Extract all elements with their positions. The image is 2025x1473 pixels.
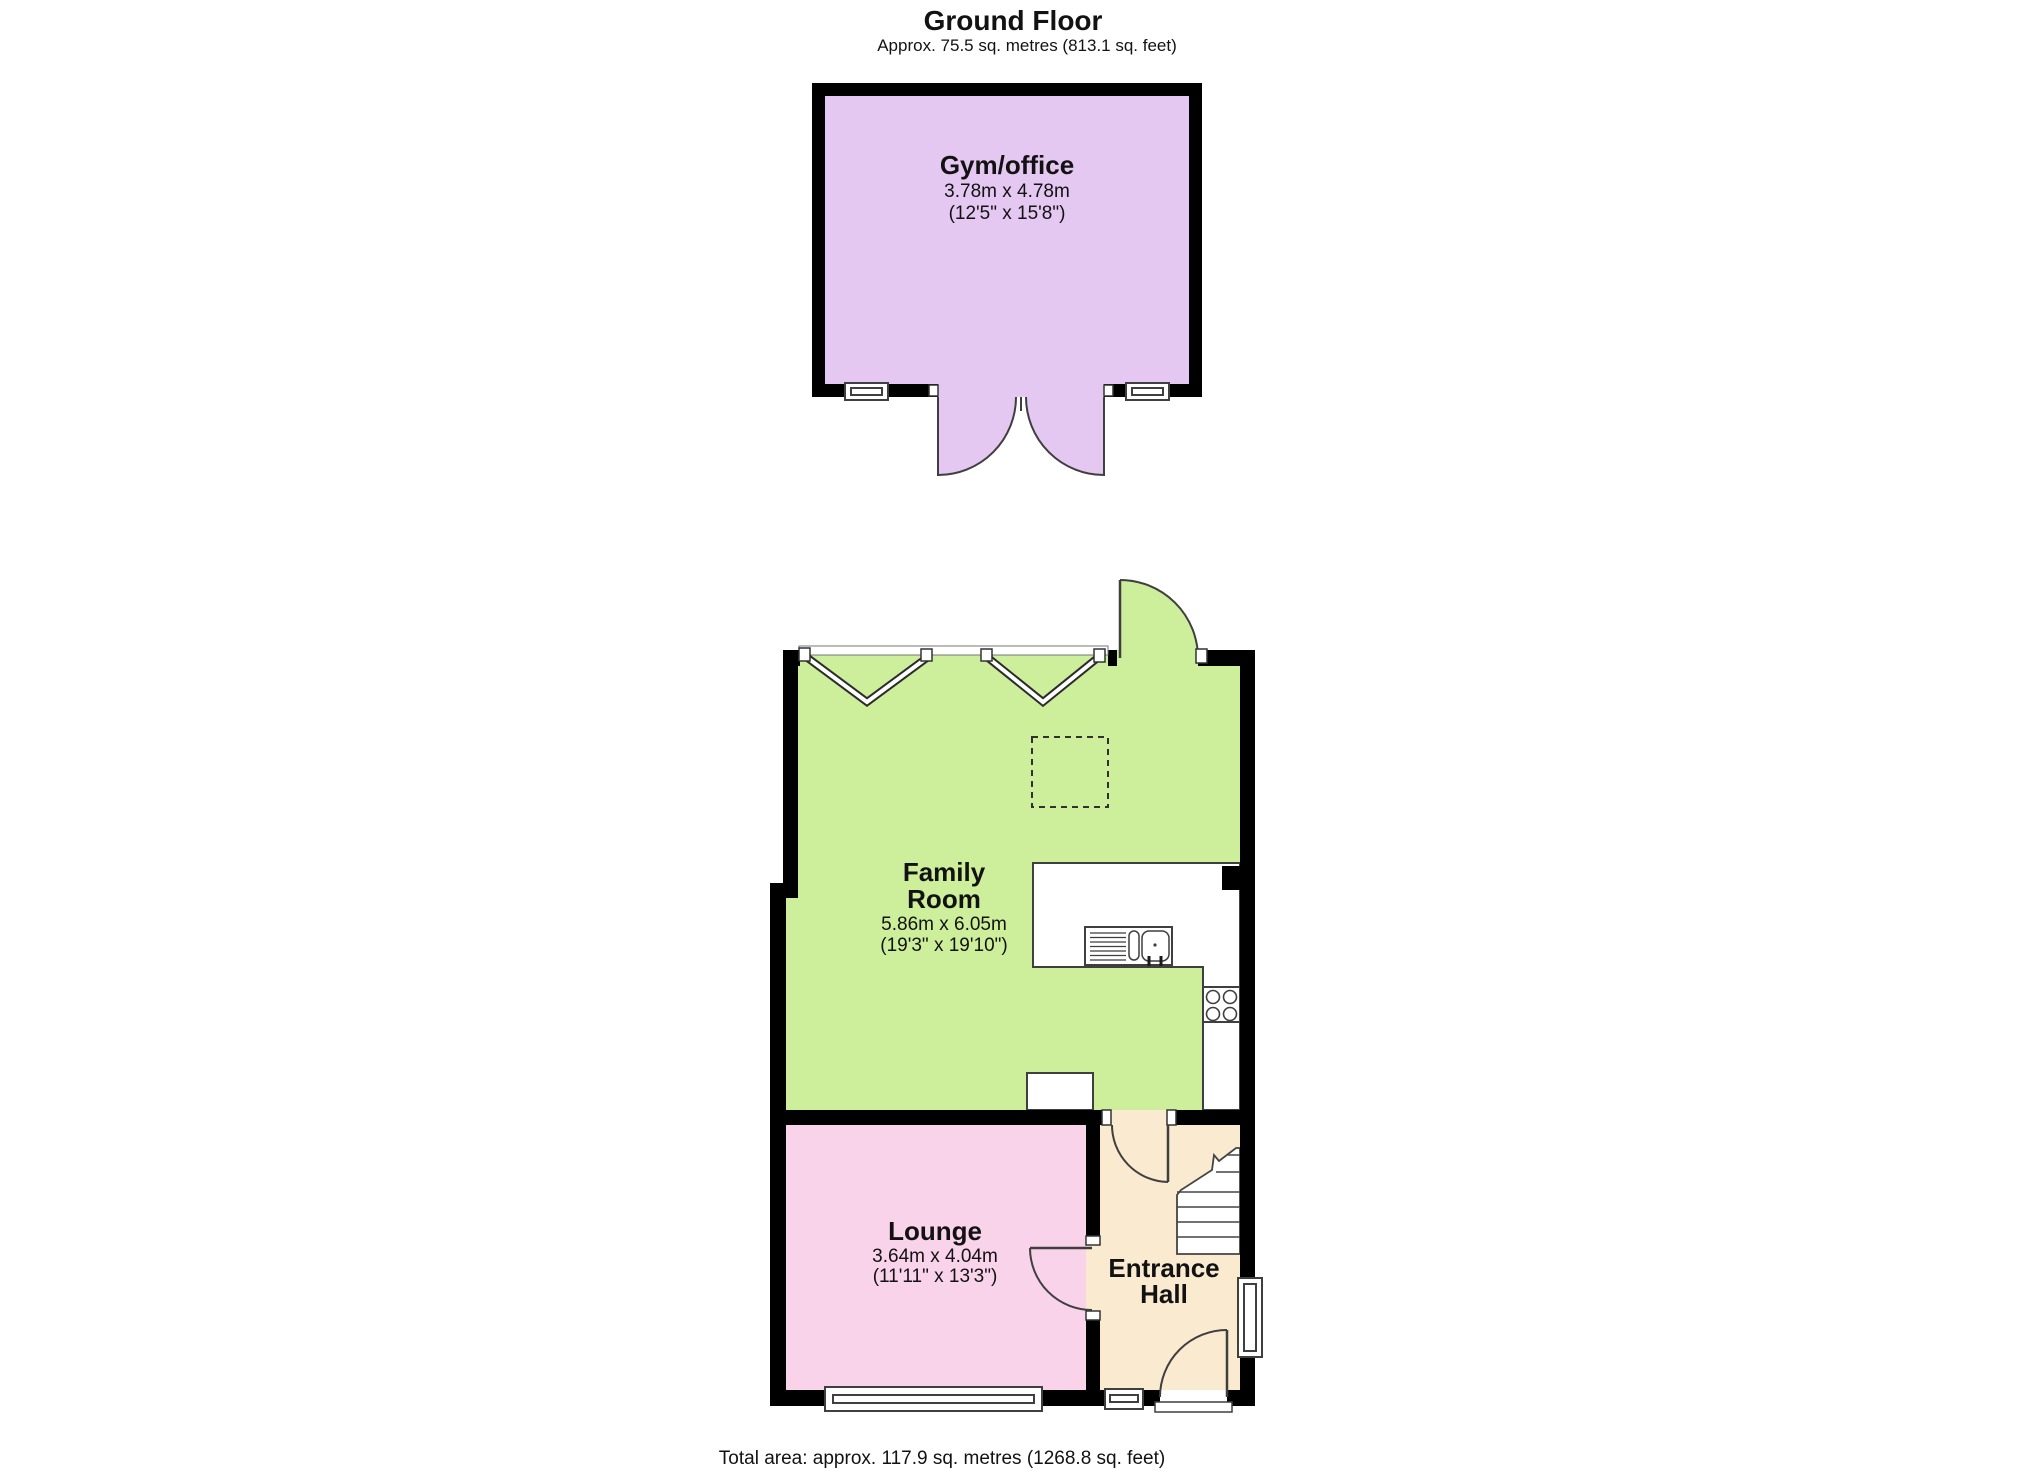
hall-door-gap-lounge bbox=[1086, 1244, 1100, 1312]
door-jamb bbox=[1167, 1110, 1176, 1125]
wall-segment bbox=[1168, 1110, 1243, 1125]
wall-segment bbox=[1240, 650, 1255, 1280]
bifold-end-post bbox=[799, 648, 810, 661]
wall-segment bbox=[770, 883, 786, 1406]
room-label: Hall bbox=[1140, 1279, 1188, 1309]
room-label: Family bbox=[903, 857, 986, 887]
hall-door-gap-top bbox=[1110, 1110, 1168, 1125]
family-room-floor-extension bbox=[786, 898, 798, 1110]
door-jamb bbox=[929, 385, 938, 396]
room-dims-metric: 3.64m x 4.04m bbox=[872, 1246, 998, 1267]
gym-office-door-gap bbox=[938, 384, 1104, 397]
room-dims-metric: 3.78m x 4.78m bbox=[944, 181, 1070, 202]
wall-segment bbox=[1086, 1125, 1100, 1244]
wall-segment bbox=[786, 1110, 1110, 1125]
room-dims-imperial: (19'3" x 19'10") bbox=[880, 935, 1007, 956]
gym-office-floor bbox=[825, 96, 1189, 384]
window bbox=[825, 1387, 1042, 1411]
garden-door-swing bbox=[1120, 580, 1198, 658]
room-lounge: Lounge 3.64m x 4.04m (11'11" x 13'3") bbox=[786, 1125, 1086, 1390]
door-jamb bbox=[1196, 649, 1207, 663]
wall-segment bbox=[1086, 1312, 1100, 1390]
floor-plan-canvas: Ground Floor Approx. 75.5 sq. metres (81… bbox=[0, 0, 2025, 1473]
front-door-threshold bbox=[1155, 1402, 1232, 1412]
room-family-room: Family Room 5.86m x 6.05m (19'3" x 19'10… bbox=[786, 580, 1240, 1110]
window bbox=[1238, 1278, 1262, 1357]
wall-segment bbox=[812, 83, 825, 397]
sink-unit bbox=[1085, 927, 1172, 966]
room-entrance-hall: Entrance Hall bbox=[1086, 1110, 1240, 1390]
door-jamb bbox=[1104, 385, 1113, 396]
page-title: Ground Floor bbox=[924, 5, 1103, 36]
wall-segment bbox=[1108, 650, 1117, 666]
wall-segment bbox=[812, 83, 1202, 96]
sink-drain bbox=[1153, 943, 1156, 946]
double-door-swing-right bbox=[1026, 397, 1104, 475]
wall-segment bbox=[1189, 83, 1202, 397]
door-jamb bbox=[1086, 1311, 1100, 1320]
drainer-lines bbox=[1090, 933, 1126, 960]
total-area-text: Total area: approx. 117.9 sq. metres (12… bbox=[719, 1448, 1165, 1469]
room-gym-office: Gym/office 3.78m x 4.78m (12'5" x 15'8") bbox=[812, 83, 1202, 475]
bifold-end-post bbox=[1094, 649, 1105, 662]
room-dims-metric: 5.86m x 6.05m bbox=[881, 914, 1007, 935]
door-jamb bbox=[1086, 1236, 1100, 1245]
fireplace-unit bbox=[1027, 1073, 1093, 1110]
room-dims-imperial: (12'5" x 15'8") bbox=[949, 203, 1066, 224]
glazing-band bbox=[799, 646, 1108, 655]
door-jamb bbox=[1102, 1110, 1111, 1125]
title-block: Ground Floor Approx. 75.5 sq. metres (81… bbox=[877, 5, 1177, 55]
wall-segment bbox=[783, 650, 798, 883]
sink-drainer-slot bbox=[1129, 931, 1139, 960]
bifold-end-post bbox=[981, 649, 992, 661]
wall-stub bbox=[1222, 866, 1240, 890]
page-subtitle: Approx. 75.5 sq. metres (813.1 sq. feet) bbox=[877, 36, 1177, 55]
room-label: Gym/office bbox=[940, 150, 1074, 180]
room-label: Room bbox=[907, 884, 981, 914]
room-label: Lounge bbox=[888, 1216, 982, 1246]
double-door-swing-left bbox=[938, 397, 1016, 475]
bifold-end-post bbox=[921, 649, 932, 661]
room-dims-imperial: (11'11" x 13'3") bbox=[873, 1266, 998, 1287]
